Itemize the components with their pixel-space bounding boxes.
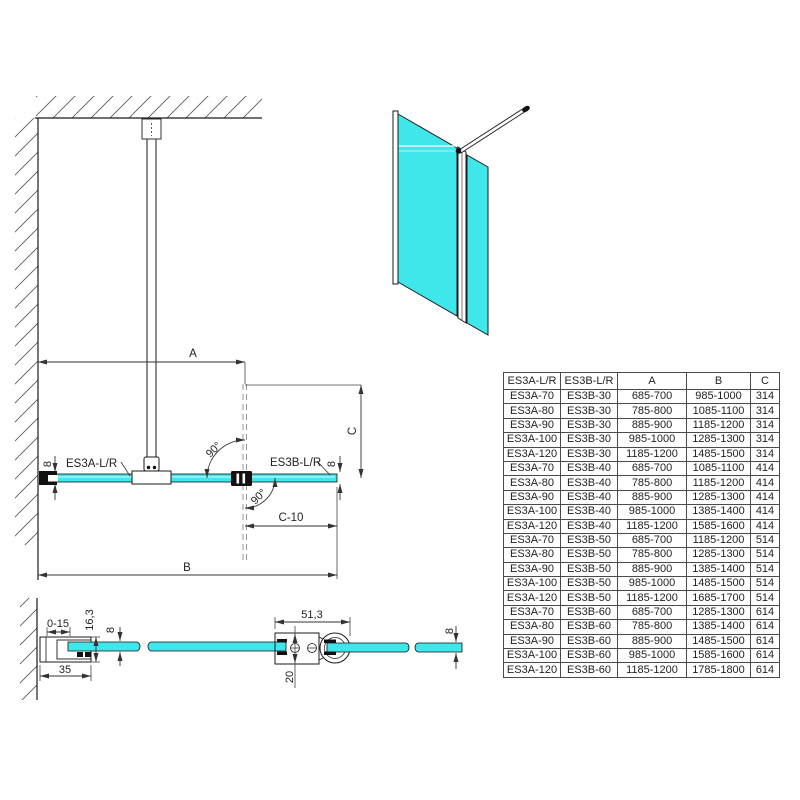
connector-tab (319, 658, 323, 660)
table-cell: 514 (751, 562, 780, 576)
table-cell: ES3A-90 (504, 418, 561, 432)
table-header-cell: B (687, 373, 751, 390)
table-cell: 1185-1200 (687, 533, 751, 547)
table-cell: 1685-1700 (687, 591, 751, 605)
table-cell: ES3B-40 (561, 490, 618, 504)
table-cell: 885-900 (618, 418, 687, 432)
table-row: ES3A-70ES3B-60685-7001285-1300614 (504, 605, 780, 619)
glass-thickness-label-left: 8 (42, 461, 54, 467)
table-cell: ES3A-100 (504, 649, 561, 663)
gasket-block (85, 652, 91, 657)
table-cell: 1185-1200 (618, 663, 687, 677)
table-cell: 1085-1100 (687, 461, 751, 475)
table-cell: 1185-1200 (687, 418, 751, 432)
table-cell: 1485-1500 (687, 634, 751, 648)
dim-label-a: A (189, 348, 197, 360)
table-row: ES3A-80ES3B-30785-8001085-1100314 (504, 404, 780, 418)
table-cell: ES3B-60 (561, 634, 618, 648)
table-cell: 614 (751, 605, 780, 619)
table-cell: 514 (751, 548, 780, 562)
clamp-jaw (324, 652, 336, 656)
gasket-block (77, 652, 83, 657)
table-row: ES3A-100ES3B-60985-10001585-1600614 (504, 649, 780, 663)
table-row: ES3A-100ES3B-30985-10001285-1300314 (504, 433, 780, 447)
table-row: ES3A-80ES3B-40785-8001185-1200414 (504, 476, 780, 490)
table-cell: ES3B-30 (561, 390, 618, 404)
glass-thickness-label-right: 8 (326, 461, 338, 467)
table-cell: 614 (751, 620, 780, 634)
table-cell: 1285-1300 (687, 548, 751, 562)
table-cell: ES3B-30 (561, 433, 618, 447)
table-header-cell: A (618, 373, 687, 390)
table-cell: ES3A-120 (504, 519, 561, 533)
isometric-view (393, 105, 531, 335)
table-row: ES3A-80ES3B-50785-8001285-1300514 (504, 548, 780, 562)
size-table: ES3A-L/RES3B-L/RABC ES3A-70ES3B-30685-70… (503, 372, 780, 678)
table-cell: ES3A-80 (504, 404, 561, 418)
glass-section (327, 643, 409, 652)
table-row: ES3A-90ES3B-40885-9001285-1300414 (504, 490, 780, 504)
table-cell: 985-1000 (618, 577, 687, 591)
table-cell: 1485-1500 (687, 447, 751, 461)
table-cell: 1485-1500 (687, 577, 751, 591)
table-cell: ES3A-70 (504, 390, 561, 404)
table-cell: ES3A-100 (504, 577, 561, 591)
table-cell: ES3B-50 (561, 577, 618, 591)
table-cell: 785-800 (618, 548, 687, 562)
size-table-body: ES3A-70ES3B-30685-700985-1000314ES3A-80E… (504, 390, 780, 678)
table-cell: 785-800 (618, 620, 687, 634)
table-row: ES3A-100ES3B-40985-10001385-1400414 (504, 505, 780, 519)
angle-label-bottom: 90° (249, 487, 269, 507)
support-bar-glass-fitting (144, 457, 159, 471)
table-cell: 1285-1300 (687, 605, 751, 619)
glass-panel-plan (50, 474, 337, 482)
table-row: ES3A-70ES3B-50685-7001185-1200514 (504, 533, 780, 547)
support-bar-clamp-plate (132, 471, 171, 484)
table-row: ES3A-70ES3B-40685-7001085-1100414 (504, 461, 780, 475)
table-cell: ES3A-120 (504, 591, 561, 605)
table-cell: 885-900 (618, 562, 687, 576)
table-cell: 1585-1600 (687, 649, 751, 663)
table-header-cell: ES3A-L/R (504, 373, 561, 390)
table-cell: 314 (751, 433, 780, 447)
table-cell: 414 (751, 505, 780, 519)
dim-label-b: B (183, 562, 191, 574)
wall-bracket-slot (48, 475, 58, 482)
table-cell: 1185-1200 (618, 591, 687, 605)
dim-label-20: 20 (284, 671, 296, 683)
table-cell: 685-700 (618, 605, 687, 619)
table-cell: ES3B-50 (561, 591, 618, 605)
table-cell: ES3B-60 (561, 663, 618, 677)
dim-label-0-15: 0-15 (47, 618, 69, 630)
table-row: ES3A-120ES3B-401185-12001585-1600414 (504, 519, 780, 533)
wall-hatch-left (15, 118, 38, 545)
joint-connector-slit (237, 474, 240, 484)
table-row: ES3A-80ES3B-60785-8001385-1400614 (504, 620, 780, 634)
table-cell: 414 (751, 461, 780, 475)
table-cell: 1185-1200 (618, 447, 687, 461)
table-cell: ES3A-100 (504, 505, 561, 519)
table-row: ES3A-90ES3B-30885-9001185-1200314 (504, 418, 780, 432)
dim-label-c: C (347, 427, 359, 435)
table-cell: 514 (751, 591, 780, 605)
table-cell: ES3A-80 (504, 620, 561, 634)
glass-section (415, 643, 462, 652)
panel-label-es3b: ES3B-L/R (270, 457, 321, 469)
table-cell: ES3A-90 (504, 634, 561, 648)
table-cell: 1185-1200 (618, 519, 687, 533)
glass-panel-fixed (467, 155, 488, 335)
size-table-header-row: ES3A-L/RES3B-L/RABC (504, 373, 780, 390)
table-cell: 985-1000 (618, 505, 687, 519)
angle-label-top: 90° (204, 440, 224, 460)
table-cell: 1285-1300 (687, 490, 751, 504)
glass-panel-main (398, 114, 457, 316)
table-row: ES3A-120ES3B-501185-12001685-1700514 (504, 591, 780, 605)
table-cell: 885-900 (618, 490, 687, 504)
table-cell: 685-700 (618, 390, 687, 404)
wall-profile-strip (393, 111, 398, 284)
table-cell: ES3B-40 (561, 476, 618, 490)
table-cell: ES3A-120 (504, 663, 561, 677)
table-row: ES3A-100ES3B-50985-10001485-1500514 (504, 577, 780, 591)
table-row: ES3A-70ES3B-30685-700985-1000314 (504, 390, 780, 404)
dim-label-c10: C-10 (279, 512, 304, 524)
table-cell: ES3B-40 (561, 519, 618, 533)
table-row: ES3A-120ES3B-601185-12001785-1800614 (504, 663, 780, 677)
dim-label-8: 8 (105, 627, 117, 633)
table-row: ES3A-90ES3B-60885-9001485-1500614 (504, 634, 780, 648)
table-row: ES3A-120ES3B-301185-12001485-1500314 (504, 447, 780, 461)
clamp-jaw (277, 639, 287, 643)
table-cell: ES3B-60 (561, 620, 618, 634)
table-cell: ES3A-120 (504, 447, 561, 461)
table-cell: 985-1000 (618, 433, 687, 447)
table-cell: ES3A-100 (504, 433, 561, 447)
glass-section (68, 642, 140, 651)
table-cell: 1185-1200 (687, 476, 751, 490)
table-cell: 1785-1800 (687, 663, 751, 677)
table-cell: 614 (751, 663, 780, 677)
fitting-screw (147, 466, 150, 469)
panel-label-es3a: ES3A-L/R (66, 458, 117, 470)
table-cell: 414 (751, 476, 780, 490)
table-cell: 985-1000 (618, 649, 687, 663)
table-cell: 314 (751, 404, 780, 418)
wall-hatch-detail (20, 598, 37, 700)
table-cell: 614 (751, 634, 780, 648)
table-cell: ES3B-40 (561, 505, 618, 519)
table-cell: 1385-1400 (687, 562, 751, 576)
support-bar-fitting (456, 148, 462, 154)
table-cell: 785-800 (618, 404, 687, 418)
dim-label-35: 35 (59, 664, 71, 676)
dim-label-51-3: 51,3 (301, 609, 322, 621)
table-cell: ES3A-80 (504, 476, 561, 490)
fitting-screw (153, 466, 156, 469)
table-cell: ES3B-30 (561, 418, 618, 432)
table-cell: 414 (751, 519, 780, 533)
connector-profile-detail: 51,3 20 8 (148, 609, 462, 688)
table-cell: 1285-1300 (687, 433, 751, 447)
table-cell: 1585-1600 (687, 519, 751, 533)
table-cell: 885-900 (618, 634, 687, 648)
table-cell: ES3B-40 (561, 461, 618, 475)
connector-tab (319, 637, 323, 639)
technical-drawing-page: A B C C-10 90° 90° 8 8 ES3A-L/R ES3B-L/R (0, 0, 800, 800)
table-cell: 614 (751, 649, 780, 663)
table-cell: ES3B-60 (561, 649, 618, 663)
support-bar (459, 108, 526, 153)
table-cell: ES3A-70 (504, 461, 561, 475)
wall-profile-detail: 0-15 16,3 8 35 (20, 598, 140, 700)
table-cell: ES3A-70 (504, 605, 561, 619)
table-cell: ES3B-50 (561, 533, 618, 547)
table-cell: ES3A-90 (504, 490, 561, 504)
table-cell: 1385-1400 (687, 620, 751, 634)
table-cell: 314 (751, 447, 780, 461)
table-cell: 314 (751, 418, 780, 432)
table-cell: 414 (751, 490, 780, 504)
dim-label-16-3: 16,3 (84, 609, 96, 630)
table-cell: 1385-1400 (687, 505, 751, 519)
table-cell: ES3A-70 (504, 533, 561, 547)
table-cell: 685-700 (618, 461, 687, 475)
top-view-drawing: A B C C-10 90° 90° 8 8 ES3A-L/R ES3B-L/R (15, 96, 361, 580)
clamp-jaw (324, 640, 336, 644)
table-cell: 514 (751, 533, 780, 547)
table-cell: 685-700 (618, 533, 687, 547)
table-cell: ES3A-90 (504, 562, 561, 576)
table-cell: 514 (751, 577, 780, 591)
table-cell: ES3B-50 (561, 548, 618, 562)
table-header-cell: C (751, 373, 780, 390)
wall-hatch-top (36, 96, 262, 118)
table-cell: 785-800 (618, 476, 687, 490)
table-row: ES3A-90ES3B-50885-9001385-1400514 (504, 562, 780, 576)
table-cell: 1085-1100 (687, 404, 751, 418)
glass-section (148, 642, 286, 651)
table-header-cell: ES3B-L/R (561, 373, 618, 390)
clamp-jaw (277, 652, 287, 656)
table-cell: ES3B-60 (561, 605, 618, 619)
dim-label-8: 8 (444, 628, 456, 634)
table-cell: ES3B-50 (561, 562, 618, 576)
table-cell: 314 (751, 390, 780, 404)
table-cell: ES3B-30 (561, 404, 618, 418)
joint-connector (231, 471, 252, 486)
table-cell: ES3A-80 (504, 548, 561, 562)
table-cell: 985-1000 (687, 390, 751, 404)
table-cell: ES3B-30 (561, 447, 618, 461)
joint-connector-slit (243, 474, 246, 484)
